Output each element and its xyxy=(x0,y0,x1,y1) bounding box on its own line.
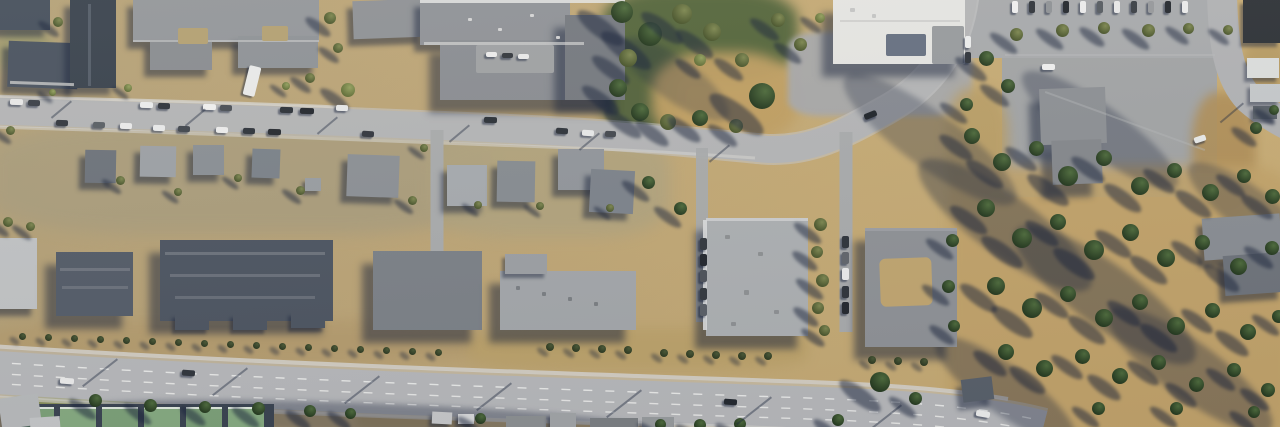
tree-45 xyxy=(279,343,286,350)
car-41 xyxy=(1165,1,1171,13)
tree-22 xyxy=(116,176,125,185)
roof-detail-25 xyxy=(542,292,546,296)
car-12 xyxy=(153,125,165,131)
tree-52 xyxy=(546,343,554,351)
car-21 xyxy=(484,117,497,123)
car-39 xyxy=(1131,1,1137,13)
building-apartment-flat-step xyxy=(505,254,547,274)
tree-41 xyxy=(175,339,182,346)
tree-88 xyxy=(1142,24,1155,37)
tree-67 xyxy=(812,302,824,314)
building-complex-north-wing-w xyxy=(150,40,212,70)
tree-134 xyxy=(1170,402,1183,415)
tree-73 xyxy=(144,399,157,412)
roof-detail-11 xyxy=(879,257,933,307)
tree-62 xyxy=(894,357,902,365)
tree-113 xyxy=(1195,235,1210,250)
tree-25 xyxy=(296,186,305,195)
tree-95 xyxy=(794,38,807,51)
car-1 xyxy=(28,100,40,106)
tree-100 xyxy=(1058,166,1078,186)
tree-135 xyxy=(1248,406,1260,418)
tree-6 xyxy=(631,103,649,121)
tree-74 xyxy=(199,401,211,413)
tree-69 xyxy=(946,234,959,247)
tree-92 xyxy=(1001,79,1015,93)
tree-66 xyxy=(816,274,829,287)
car-49 xyxy=(842,252,849,264)
tree-15 xyxy=(282,82,290,90)
tree-125 xyxy=(998,344,1014,360)
building-apartment-dark-a xyxy=(56,252,133,316)
tree-103 xyxy=(1167,163,1182,178)
tree-31 xyxy=(674,202,687,215)
tree-107 xyxy=(977,199,995,217)
tree-84 xyxy=(832,414,844,426)
tree-63 xyxy=(920,358,928,366)
car-50 xyxy=(842,268,849,280)
building-hut-south xyxy=(961,376,995,403)
tree-78 xyxy=(475,413,486,424)
tree-55 xyxy=(624,346,632,354)
tree-29 xyxy=(606,204,614,212)
building-apartment-dark-b-t2 xyxy=(233,314,267,330)
roof-detail-19 xyxy=(725,235,730,239)
car-46 xyxy=(700,288,707,300)
tree-112 xyxy=(1157,249,1175,267)
roof-detail-3 xyxy=(178,28,208,44)
tree-21 xyxy=(53,17,63,27)
tree-65 xyxy=(811,246,823,258)
building-building-midright-main xyxy=(1039,87,1107,145)
roof-detail-10 xyxy=(840,20,960,22)
roof-detail-28 xyxy=(468,18,472,21)
building-apartment-west-light xyxy=(0,238,37,309)
tree-118 xyxy=(1060,286,1076,302)
car-2 xyxy=(140,102,153,108)
building-apartment-dark-b-t3 xyxy=(291,312,325,328)
car-20 xyxy=(605,131,616,138)
tree-35 xyxy=(19,333,26,340)
tree-105 xyxy=(1237,169,1251,183)
car-34 xyxy=(1046,1,1052,13)
tree-51 xyxy=(435,349,442,356)
car-6 xyxy=(280,107,293,113)
car-11 xyxy=(120,123,132,129)
tree-14 xyxy=(305,73,315,83)
tree-90 xyxy=(1223,25,1233,35)
car-32 xyxy=(1012,1,1018,13)
tree-121 xyxy=(1167,317,1185,335)
tree-39 xyxy=(123,337,130,344)
car-52 xyxy=(842,302,849,314)
tree-96 xyxy=(815,13,825,23)
tree-8 xyxy=(692,110,708,126)
car-54 xyxy=(502,53,513,58)
tree-30 xyxy=(642,176,655,189)
building-house-6 xyxy=(447,165,487,206)
roof-detail-14 xyxy=(165,252,325,255)
building-condo-nw-wing xyxy=(352,0,423,39)
building-trailer-yard-1 xyxy=(432,411,453,424)
roof-detail-21 xyxy=(744,290,749,295)
roof-detail-0 xyxy=(133,40,319,42)
car-17 xyxy=(362,131,374,138)
building-shed-1 xyxy=(506,416,546,427)
tree-5 xyxy=(609,79,627,97)
tree-128 xyxy=(1112,368,1128,384)
roof-detail-27 xyxy=(594,302,598,306)
tree-85 xyxy=(1010,28,1023,41)
building-garage-1 xyxy=(305,178,321,191)
tree-115 xyxy=(1265,241,1279,255)
car-28 xyxy=(965,36,971,48)
tree-127 xyxy=(1075,349,1090,364)
tree-37 xyxy=(71,335,78,342)
tree-89 xyxy=(1183,23,1194,34)
tree-75 xyxy=(252,402,265,415)
tree-87 xyxy=(1098,22,1110,34)
car-19 xyxy=(582,130,594,137)
tree-76 xyxy=(304,405,316,417)
tree-131 xyxy=(1227,363,1241,377)
roof-detail-2 xyxy=(88,4,91,86)
roof-detail-8 xyxy=(886,34,926,56)
car-9 xyxy=(56,120,68,126)
tree-43 xyxy=(227,341,234,348)
car-24 xyxy=(60,378,74,385)
tree-48 xyxy=(357,346,364,353)
tree-83 xyxy=(909,392,922,405)
building-house-5 xyxy=(346,154,399,198)
tree-123 xyxy=(1240,324,1256,340)
roof-detail-24 xyxy=(516,286,520,290)
tree-124 xyxy=(1272,310,1280,323)
tree-71 xyxy=(948,320,960,332)
tree-3 xyxy=(703,23,721,41)
tree-44 xyxy=(253,342,260,349)
tree-53 xyxy=(572,344,580,352)
tree-11 xyxy=(735,53,749,67)
tree-13 xyxy=(341,83,355,97)
tree-38 xyxy=(97,336,104,343)
tree-26 xyxy=(408,196,417,205)
car-30 xyxy=(1042,64,1055,70)
tree-82 xyxy=(870,372,890,392)
tree-28 xyxy=(536,202,544,210)
car-44 xyxy=(700,254,707,266)
tree-119 xyxy=(1095,309,1113,327)
building-trailer-ne-1 xyxy=(1247,58,1279,78)
tree-126 xyxy=(1036,360,1053,377)
tree-70 xyxy=(942,280,955,293)
car-7 xyxy=(300,108,314,114)
car-33 xyxy=(1029,1,1035,13)
tree-46 xyxy=(305,344,312,351)
tree-129 xyxy=(1151,355,1166,370)
tree-122 xyxy=(1205,303,1220,318)
tree-120 xyxy=(1132,294,1148,310)
tree-59 xyxy=(738,352,746,360)
tree-104 xyxy=(1202,184,1219,201)
car-29 xyxy=(965,52,971,63)
tree-68 xyxy=(819,325,830,336)
building-apartment-mid-gray xyxy=(373,251,482,330)
roof-detail-16 xyxy=(175,296,315,299)
tree-79 xyxy=(655,419,666,427)
tree-91 xyxy=(979,51,994,66)
car-25 xyxy=(182,370,195,377)
building-apartment-dark-long xyxy=(70,0,116,88)
tree-24 xyxy=(234,174,242,182)
tree-101 xyxy=(1096,150,1112,166)
tree-61 xyxy=(868,356,876,364)
building-shed-2 xyxy=(550,413,576,427)
tree-16 xyxy=(49,89,56,96)
car-3 xyxy=(158,103,170,109)
car-35 xyxy=(1063,1,1069,13)
tree-116 xyxy=(987,277,1005,295)
tree-40 xyxy=(149,338,156,345)
roof-detail-7 xyxy=(476,45,554,73)
roof-detail-29 xyxy=(498,28,502,31)
tree-132 xyxy=(1261,383,1275,397)
roof-detail-23 xyxy=(731,322,736,326)
tree-58 xyxy=(712,351,720,359)
building-house-7 xyxy=(497,161,536,203)
tree-106 xyxy=(1265,189,1280,204)
car-8 xyxy=(336,105,348,111)
tree-4 xyxy=(619,49,637,67)
tree-0 xyxy=(611,1,633,23)
tree-20 xyxy=(333,43,343,53)
tree-50 xyxy=(409,348,416,355)
building-condo-main-north xyxy=(420,0,570,45)
car-51 xyxy=(842,286,849,298)
tree-102 xyxy=(1131,177,1149,195)
building-building-corner-ne xyxy=(1243,0,1280,43)
building-trailer-ne-2 xyxy=(1250,84,1280,102)
tree-10 xyxy=(749,83,775,109)
car-47 xyxy=(700,304,707,316)
building-roof-bl-corner-2 xyxy=(30,416,61,427)
car-45 xyxy=(700,270,707,282)
car-40 xyxy=(1148,1,1154,13)
tree-94 xyxy=(771,13,785,27)
tree-54 xyxy=(598,345,606,353)
car-38 xyxy=(1114,1,1120,13)
tree-56 xyxy=(660,349,668,357)
building-house-2 xyxy=(140,146,177,178)
tree-136 xyxy=(1250,122,1262,134)
tree-80 xyxy=(694,419,706,427)
car-42 xyxy=(1182,1,1188,13)
tree-60 xyxy=(764,352,772,360)
tree-19 xyxy=(324,12,336,24)
car-13 xyxy=(178,126,190,132)
tree-72 xyxy=(89,394,102,407)
tree-34 xyxy=(26,222,35,231)
roof-detail-20 xyxy=(758,252,763,256)
roof-detail-34 xyxy=(865,228,957,231)
tree-47 xyxy=(331,345,338,352)
tree-77 xyxy=(345,408,356,419)
roof-detail-13 xyxy=(706,218,808,221)
roof-detail-30 xyxy=(530,14,534,17)
roof-detail-22 xyxy=(774,310,779,314)
tree-23 xyxy=(174,188,182,196)
roof-detail-18 xyxy=(62,286,128,289)
tree-57 xyxy=(686,350,694,358)
car-43 xyxy=(700,238,707,250)
tree-64 xyxy=(814,218,827,231)
building-house-3 xyxy=(193,145,224,175)
satellite-map-viewport[interactable] xyxy=(0,0,1280,427)
tree-2 xyxy=(672,4,692,24)
roof-detail-4 xyxy=(262,26,288,41)
building-house-1 xyxy=(85,150,117,184)
car-48 xyxy=(842,236,849,248)
tree-109 xyxy=(1050,214,1066,230)
car-14 xyxy=(216,127,228,133)
tree-86 xyxy=(1056,24,1069,37)
tree-27 xyxy=(474,201,482,209)
roof-detail-33 xyxy=(872,14,876,18)
car-10 xyxy=(93,122,105,128)
roof-detail-32 xyxy=(850,8,855,12)
tree-137 xyxy=(1269,105,1279,115)
roof-detail-5 xyxy=(420,0,625,3)
car-26 xyxy=(724,399,737,406)
roof-detail-17 xyxy=(60,268,130,271)
tree-12 xyxy=(694,54,706,66)
tree-97 xyxy=(964,128,980,144)
tree-93 xyxy=(960,98,973,111)
tree-32 xyxy=(420,144,428,152)
tree-49 xyxy=(383,347,390,354)
car-37 xyxy=(1097,1,1103,13)
tree-17 xyxy=(124,84,132,92)
tree-18 xyxy=(6,126,15,135)
tree-114 xyxy=(1230,258,1247,275)
building-shed-3 xyxy=(590,418,638,427)
tree-111 xyxy=(1122,224,1139,241)
tree-133 xyxy=(1092,402,1105,415)
tree-36 xyxy=(45,334,52,341)
roof-detail-31 xyxy=(556,36,560,39)
building-apartment-dark-b-t1 xyxy=(175,314,209,330)
roof-detail-26 xyxy=(568,297,572,301)
building-apartment-large-light xyxy=(706,218,808,336)
building-house-4 xyxy=(252,149,281,179)
car-36 xyxy=(1080,1,1086,13)
tree-99 xyxy=(1029,141,1044,156)
car-16 xyxy=(268,129,281,135)
car-15 xyxy=(243,128,255,134)
tree-130 xyxy=(1189,377,1204,392)
roof-detail-35 xyxy=(1005,54,1215,56)
roof-detail-15 xyxy=(170,274,320,277)
car-0 xyxy=(10,99,23,105)
car-5 xyxy=(220,105,232,111)
tree-42 xyxy=(201,340,208,347)
car-53 xyxy=(486,52,497,57)
car-55 xyxy=(518,54,529,59)
car-18 xyxy=(556,128,568,135)
